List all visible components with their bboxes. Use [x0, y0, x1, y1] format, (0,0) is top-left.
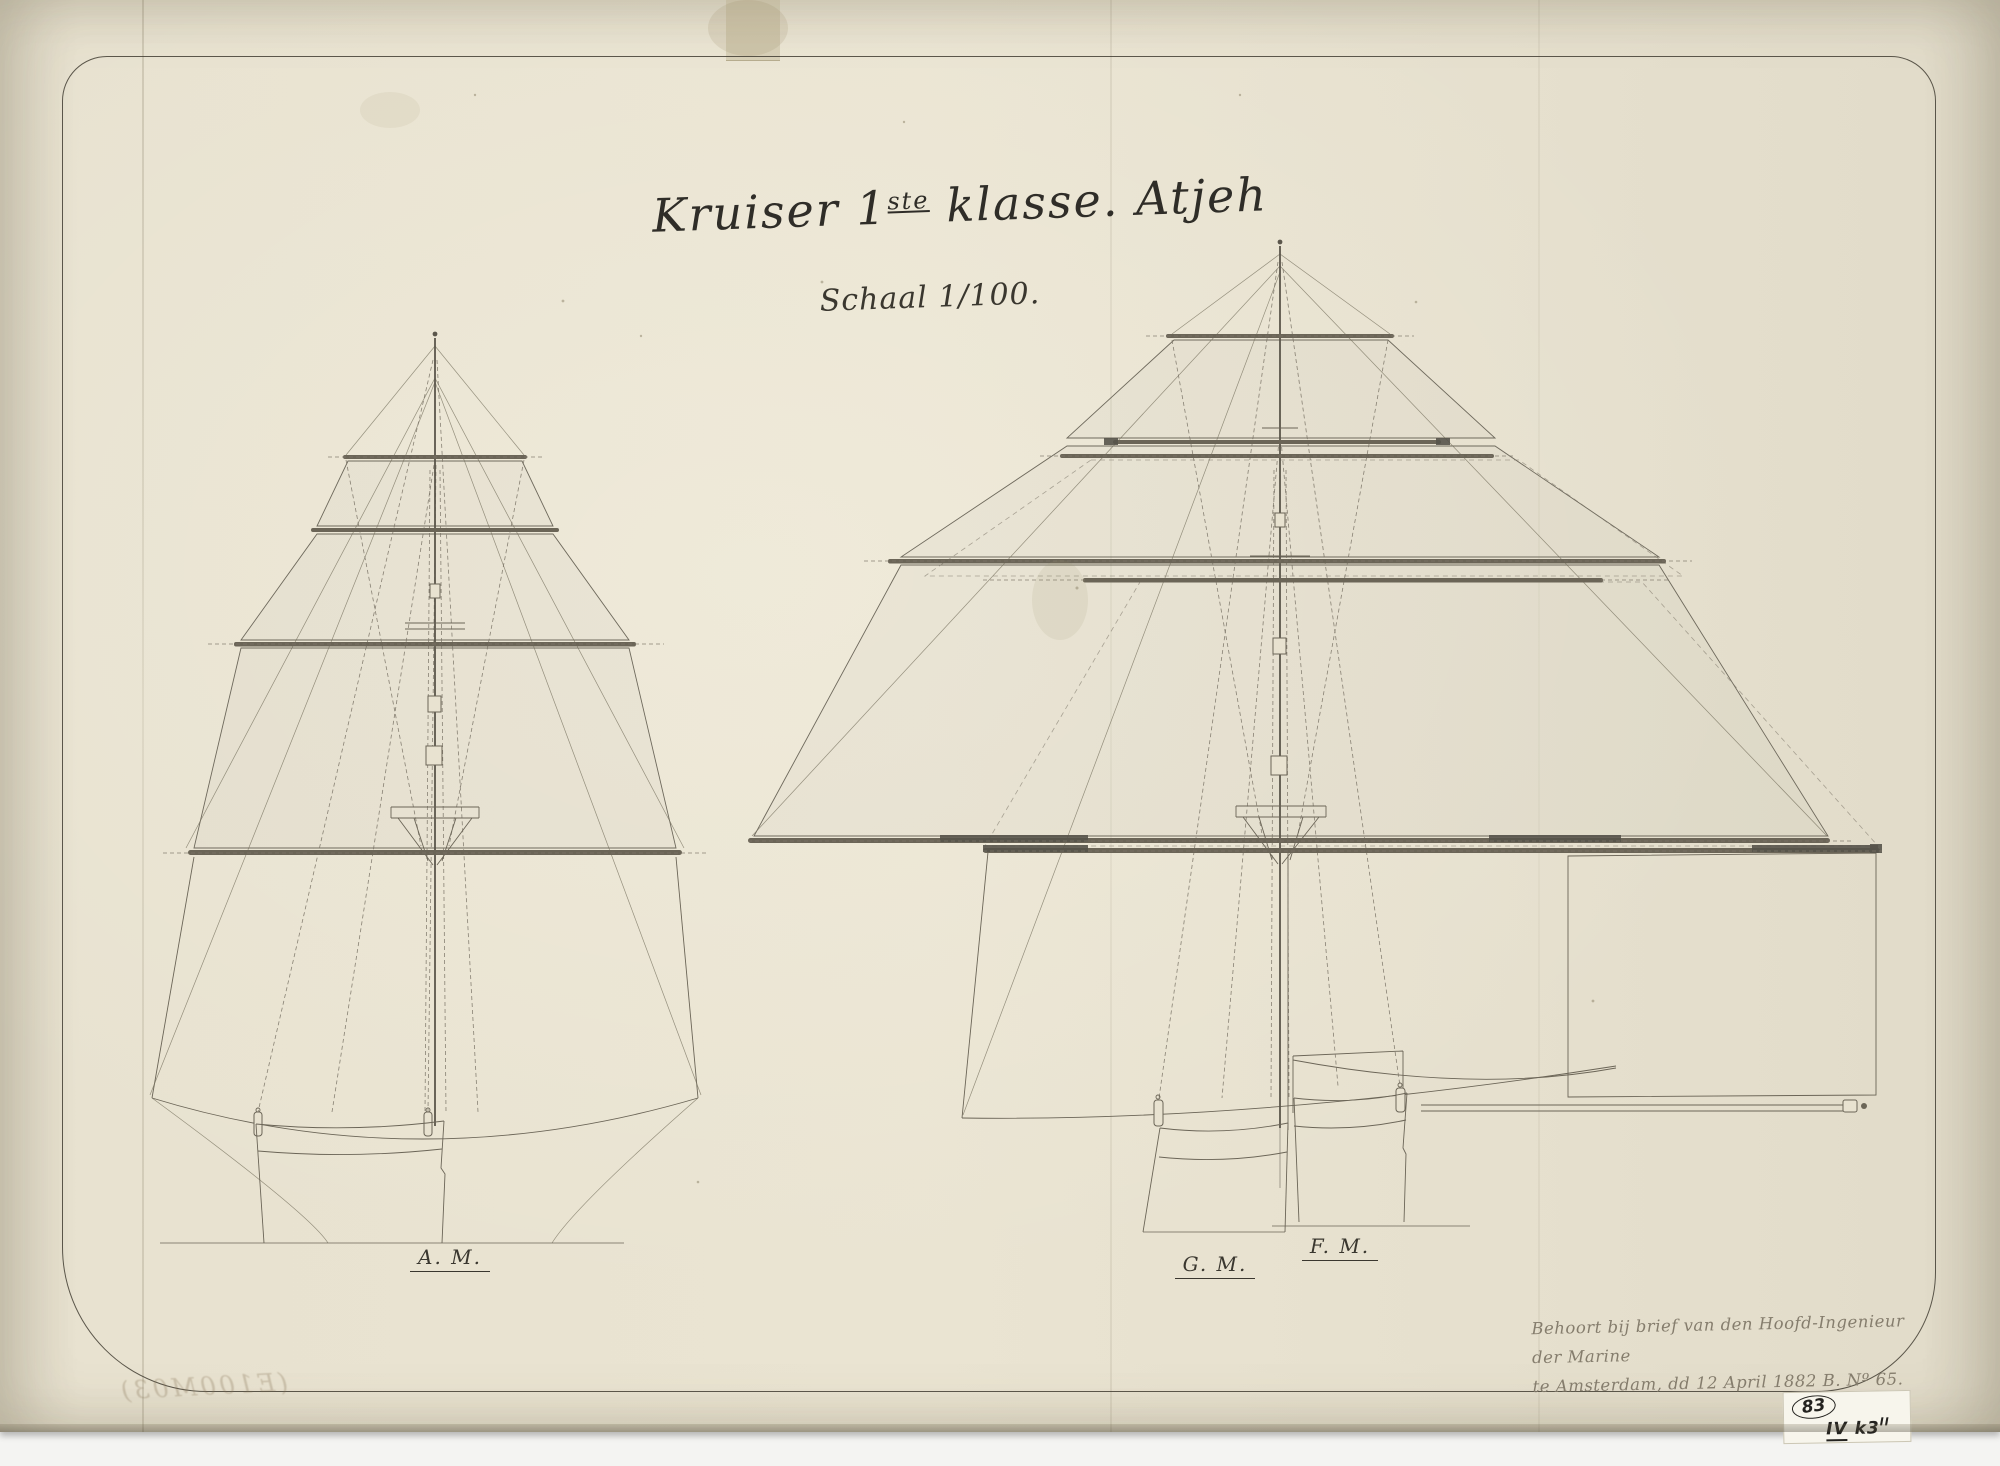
- fore-course-boom: [1421, 1100, 1867, 1112]
- paper-bottom-edge: [0, 1424, 2000, 1432]
- title-prefix: Kruiser 1: [651, 181, 888, 243]
- title-superscript: ste: [887, 186, 930, 215]
- main-mast-label: G. M.: [1145, 1252, 1285, 1279]
- main-hull: [1143, 1123, 1288, 1232]
- archival-annotation: Behoort bij brief van den Hoofd-Ingenieu…: [1531, 1306, 1933, 1401]
- paper-sheet: Kruiser 1ste klasse. Atjeh Schaal 1/100.…: [0, 0, 2000, 1432]
- fore-hull: [1272, 1093, 1470, 1226]
- fore-mast-label: F. M.: [1275, 1234, 1405, 1261]
- scanned-drawing: Kruiser 1ste klasse. Atjeh Schaal 1/100.…: [0, 0, 2000, 1466]
- aft-clew-blocks: [254, 1108, 432, 1136]
- annotation-line-1: Behoort bij brief van den Hoofd-Ingenieu…: [1531, 1306, 1932, 1372]
- archive-stamp: 83 IV k3II: [1783, 1390, 1912, 1444]
- aft-mast-label: A. M.: [380, 1245, 520, 1272]
- aft-hull: [160, 1121, 624, 1243]
- aft-mast-sail-plan: [150, 332, 707, 1243]
- main-fore-mast-sail-plan: [748, 240, 1882, 1232]
